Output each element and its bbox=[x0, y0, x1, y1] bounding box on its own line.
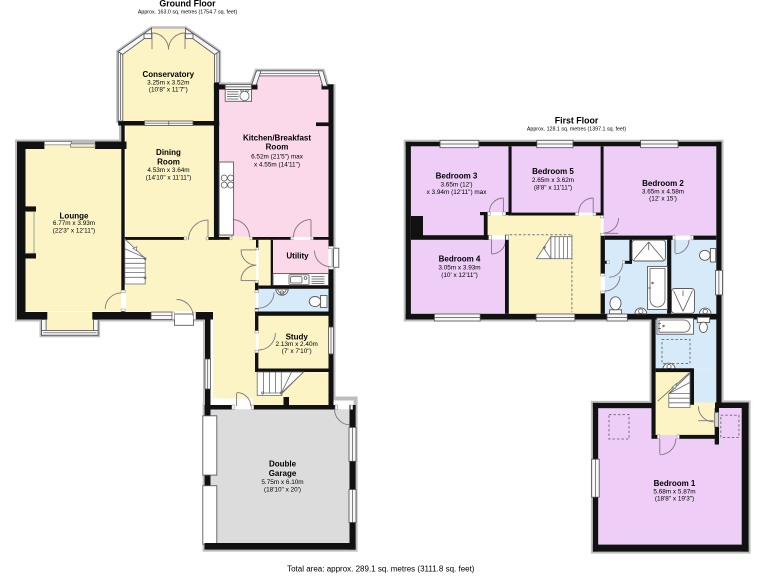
svg-text:Total area: approx. 289.1 sq.: Total area: approx. 289.1 sq. metres (31… bbox=[287, 564, 475, 573]
svg-text:x 4.55m (14'11"): x 4.55m (14'11") bbox=[254, 161, 300, 168]
svg-text:Double: Double bbox=[269, 460, 297, 469]
svg-text:x 3.94m (12'11") max: x 3.94m (12'11") max bbox=[427, 189, 488, 196]
svg-text:(10' x 12'11"): (10' x 12'11") bbox=[441, 272, 478, 279]
svg-text:(12' x 15'): (12' x 15') bbox=[649, 195, 677, 202]
svg-text:First Floor: First Floor bbox=[555, 115, 599, 125]
svg-text:Approx. 163.0 sq. metres (1754: Approx. 163.0 sq. metres (1754.7 sq. fee… bbox=[138, 9, 237, 15]
svg-text:5.68m x 5.87m: 5.68m x 5.87m bbox=[653, 488, 695, 495]
svg-text:Kitchen/Breakfast: Kitchen/Breakfast bbox=[243, 133, 311, 142]
svg-text:Bedroom 5: Bedroom 5 bbox=[532, 167, 574, 176]
svg-text:Bedroom 1: Bedroom 1 bbox=[654, 479, 696, 488]
svg-text:Approx. 128.1 sq. metres (1397: Approx. 128.1 sq. metres (1397.1 sq. fee… bbox=[527, 127, 626, 133]
svg-text:3.65m (12'): 3.65m (12') bbox=[440, 182, 472, 189]
svg-text:(14'10" x 11'11"): (14'10" x 11'11") bbox=[146, 174, 191, 181]
svg-text:4.53m x 3.64m: 4.53m x 3.64m bbox=[147, 167, 189, 174]
svg-text:Ground Floor: Ground Floor bbox=[159, 0, 216, 8]
svg-text:(8'8" x 11'11"): (8'8" x 11'11") bbox=[534, 185, 572, 192]
svg-text:(18'10" x 20'): (18'10" x 20') bbox=[264, 486, 301, 493]
svg-text:Bedroom 3: Bedroom 3 bbox=[436, 172, 478, 181]
svg-text:Room: Room bbox=[266, 142, 289, 151]
svg-text:Bedroom 4: Bedroom 4 bbox=[439, 255, 481, 264]
svg-text:Study: Study bbox=[286, 333, 309, 342]
svg-text:3.05m x 3.93m: 3.05m x 3.93m bbox=[438, 265, 480, 272]
svg-text:(22'3" x 12'11"): (22'3" x 12'11") bbox=[53, 227, 95, 234]
svg-text:6.77m x 3.93m: 6.77m x 3.93m bbox=[53, 220, 95, 227]
svg-text:3.25m x 3.52m: 3.25m x 3.52m bbox=[147, 79, 189, 86]
svg-text:3.65m x 4.58m: 3.65m x 4.58m bbox=[642, 188, 684, 195]
svg-text:(18'8" x 19'3"): (18'8" x 19'3") bbox=[655, 496, 694, 503]
svg-text:(10'8" x 11'7"): (10'8" x 11'7") bbox=[149, 87, 188, 94]
svg-text:Bedroom 2: Bedroom 2 bbox=[642, 179, 684, 188]
svg-text:Garage: Garage bbox=[269, 469, 297, 478]
svg-text:Room: Room bbox=[157, 157, 180, 166]
svg-text:Dining: Dining bbox=[156, 148, 181, 157]
svg-text:6.52m (21'5") max: 6.52m (21'5") max bbox=[251, 153, 304, 160]
svg-text:5.75m x 6.10m: 5.75m x 6.10m bbox=[261, 479, 303, 486]
svg-text:(7' x 7'10"): (7' x 7'10") bbox=[282, 348, 312, 355]
svg-text:Conservatory: Conservatory bbox=[143, 70, 195, 79]
svg-text:Utility: Utility bbox=[286, 252, 309, 261]
svg-text:2.65m x 3.62m: 2.65m x 3.62m bbox=[532, 177, 574, 184]
